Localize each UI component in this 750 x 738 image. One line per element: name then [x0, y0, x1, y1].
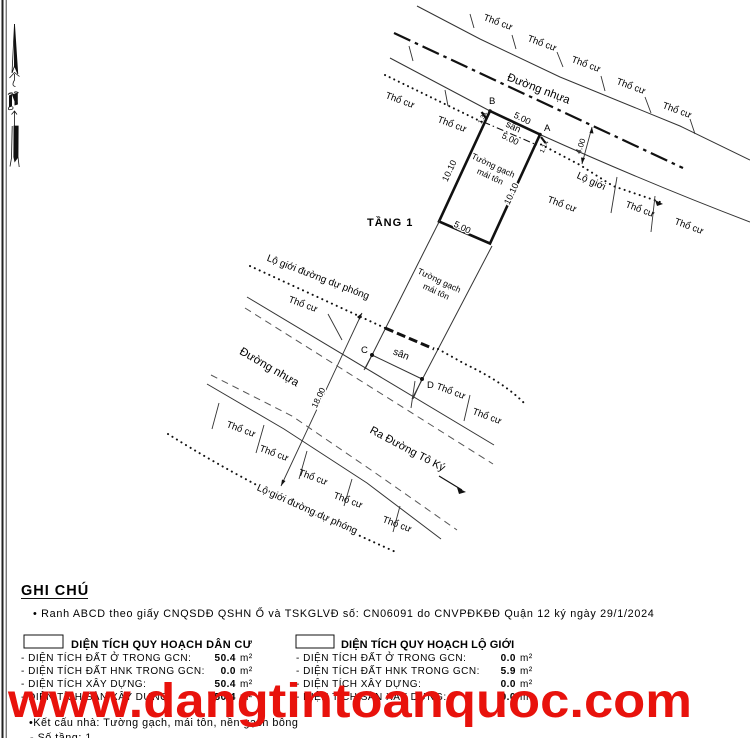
svg-text:Lộ giới đường dự phóng: Lộ giới đường dự phóng: [255, 483, 359, 537]
svg-text:Thổ cư: Thổ cư: [435, 381, 468, 402]
svg-text:A: A: [544, 123, 551, 134]
svg-text:- DIỆN TÍCH ĐẤT Ở TRONG GCN:: - DIỆN TÍCH ĐẤT Ở TRONG GCN:: [296, 651, 466, 664]
svg-text:Thổ cư: Thổ cư: [436, 114, 469, 135]
svg-text:GHI CHÚ: GHI CHÚ: [21, 581, 89, 599]
svg-text:Thổ cư: Thổ cư: [546, 194, 579, 215]
svg-text:TẦNG 1: TẦNG 1: [367, 216, 413, 229]
svg-text:1.14: 1.14: [539, 140, 551, 155]
svg-text:Thổ cư: Thổ cư: [471, 406, 504, 427]
svg-text:Thổ cư: Thổ cư: [258, 443, 291, 464]
svg-text:10.10: 10.10: [440, 158, 459, 183]
svg-text:Thổ cư: Thổ cư: [526, 33, 559, 54]
svg-text:m²: m²: [520, 653, 533, 664]
svg-text:50.4: 50.4: [215, 653, 236, 664]
svg-text:D: D: [427, 380, 434, 391]
svg-text:Thổ cư: Thổ cư: [673, 216, 706, 237]
svg-text:Thổ cư: Thổ cư: [482, 12, 515, 33]
svg-text:Thổ cư: Thổ cư: [297, 467, 330, 488]
svg-text:18.00: 18.00: [309, 386, 327, 410]
svg-text:DIỆN TÍCH QUY HOẠCH DÂN CƯ: DIỆN TÍCH QUY HOẠCH DÂN CƯ: [71, 638, 253, 651]
svg-text:10.10: 10.10: [502, 181, 521, 206]
svg-text:Thổ cư: Thổ cư: [661, 100, 694, 121]
svg-text:• Ranh ABCD theo giấy CNQSDĐ: • Ranh ABCD theo giấy CNQSDĐ QSHN Ổ và T…: [33, 607, 654, 620]
svg-text:Lộ giới đường dự phóng: Lộ giới đường dự phóng: [265, 253, 371, 302]
svg-text:m²: m²: [240, 653, 253, 664]
svg-text:5.00: 5.00: [452, 219, 472, 236]
svg-text:Thổ cư: Thổ cư: [287, 294, 320, 315]
svg-text:Lộ giới: Lộ giới: [575, 170, 607, 192]
svg-text:Thổ cư: Thổ cư: [384, 90, 417, 111]
svg-text:B: B: [489, 96, 495, 107]
svg-text:- DIỆN TÍCH ĐẤT Ở TRONG GCN:: - DIỆN TÍCH ĐẤT Ở TRONG GCN:: [21, 651, 191, 664]
svg-text:Thổ cư: Thổ cư: [615, 76, 648, 97]
svg-text:Thổ cư: Thổ cư: [225, 419, 258, 440]
svg-text:Đường nhựa: Đường nhựa: [237, 346, 301, 390]
svg-text:C: C: [361, 345, 368, 356]
svg-text:Thổ cư: Thổ cư: [570, 54, 603, 75]
svg-text:- Số tầng: 1: - Số tầng: 1: [30, 732, 92, 738]
svg-text:DIỆN TÍCH QUY HOẠCH LỘ GIỚI: DIỆN TÍCH QUY HOẠCH LỘ GIỚI: [341, 638, 514, 651]
svg-text:0.0: 0.0: [501, 653, 516, 664]
svg-text:Ra Đường Tô Ký: Ra Đường Tô Ký: [368, 424, 448, 474]
svg-text:sân: sân: [391, 347, 410, 363]
svg-text:Thổ cư: Thổ cư: [624, 199, 657, 220]
svg-text:www.dangtintoanquoc.com: www.dangtintoanquoc.com: [7, 675, 692, 728]
